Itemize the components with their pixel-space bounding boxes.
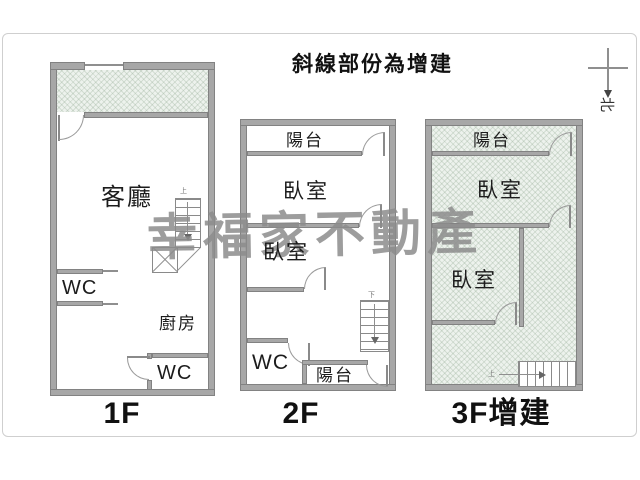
wall xyxy=(432,320,495,325)
north-label: 北 xyxy=(599,97,614,112)
wall xyxy=(302,360,368,365)
room-label-balcony-bottom-2f: 陽台 xyxy=(316,367,354,384)
hatch-area-1f-addition xyxy=(57,70,208,112)
room-label-living: 客廳 xyxy=(101,186,153,210)
wall xyxy=(123,62,215,70)
room-label-bedroom1-2f: 臥室 xyxy=(283,181,329,202)
plan-title: 斜線部份為增建 xyxy=(292,54,453,75)
wall xyxy=(247,151,362,156)
room-label-bedroom2-2f: 臥室 xyxy=(263,242,309,263)
floor-plan-image: 斜線部份為增建 北 客廳 上 WC 廚房 WC 1F 陽台 臥室 xyxy=(0,0,640,480)
floor-label-3f: 3F增建 xyxy=(421,399,581,429)
wall xyxy=(576,119,583,391)
north-arrow-line xyxy=(607,48,609,91)
wall xyxy=(247,338,288,343)
room-label-balcony-3f: 陽台 xyxy=(473,132,511,149)
stair-direction-label: 下 xyxy=(368,292,375,299)
wall xyxy=(50,62,57,396)
wall xyxy=(519,228,524,327)
floor-label-1f: 1F xyxy=(77,399,167,429)
wall xyxy=(57,269,103,274)
wall xyxy=(147,380,152,390)
room-label-wc-lower: WC xyxy=(157,363,192,383)
wall xyxy=(50,389,215,396)
stair-arrow-line xyxy=(499,374,540,375)
wall xyxy=(152,353,208,358)
window-line xyxy=(85,64,123,66)
room-label-kitchen: 廚房 xyxy=(159,315,197,332)
stair-arrow-icon xyxy=(539,371,546,379)
stair-direction-label: 上 xyxy=(180,188,187,195)
wall xyxy=(57,301,103,306)
watermark: 幸福家不動產 xyxy=(147,207,484,263)
north-cross-line xyxy=(588,67,628,69)
north-indicator: 北 xyxy=(580,44,636,120)
wall xyxy=(247,287,304,292)
wall xyxy=(84,112,208,118)
floor-label-2f: 2F xyxy=(256,399,346,429)
stair-arrow-line xyxy=(374,304,375,338)
stair-arrow-icon xyxy=(371,337,379,344)
wall xyxy=(50,62,85,70)
room-label-wc-upper: WC xyxy=(62,278,97,298)
room-label-bedroom2-3f: 臥室 xyxy=(451,270,497,291)
room-label-bedroom1-3f: 臥室 xyxy=(477,180,523,201)
door-line xyxy=(103,270,118,272)
wall xyxy=(425,119,583,126)
wall xyxy=(432,151,549,156)
door-line xyxy=(103,303,118,305)
stair-direction-label: 上 xyxy=(488,371,495,378)
wall xyxy=(240,119,396,126)
wall xyxy=(240,384,396,391)
room-label-wc-2f: WC xyxy=(252,352,289,373)
room-label-balcony-top-2f: 陽台 xyxy=(286,132,324,149)
